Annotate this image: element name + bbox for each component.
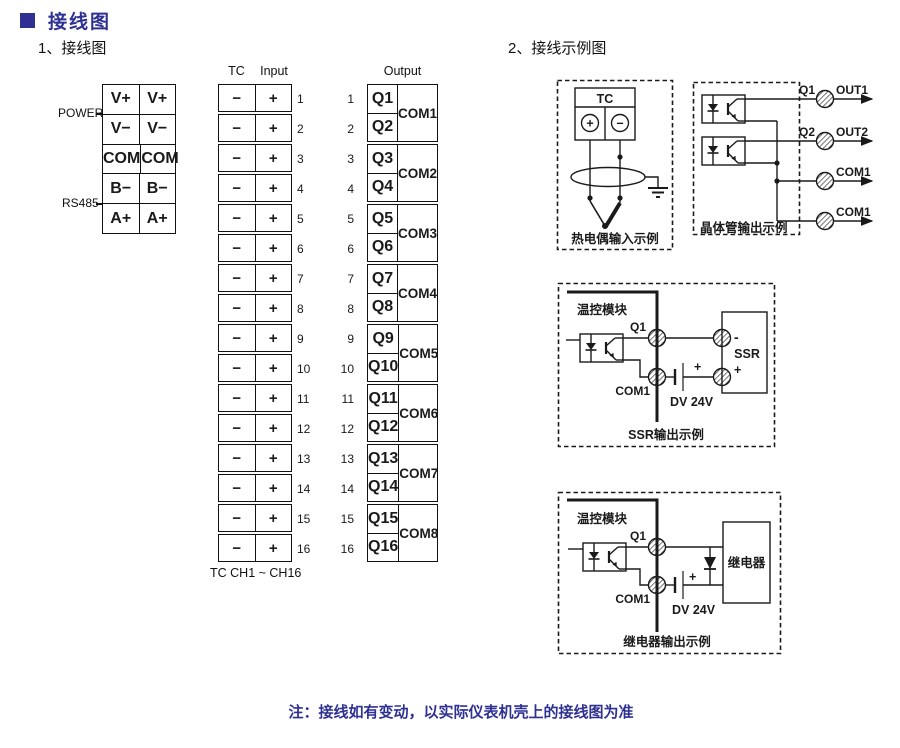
input-header-tc: TC <box>218 64 255 78</box>
input-channel-number: 3 <box>297 144 310 174</box>
output-channel-number: 8 <box>332 294 354 324</box>
section-bullet-icon <box>20 13 35 28</box>
power-row: COMCOM <box>103 144 175 174</box>
power-row: V+V+ <box>103 85 175 114</box>
input-minus-terminal: − <box>219 385 256 411</box>
input-channel-row: −+ <box>218 294 292 322</box>
input-plus-terminal: + <box>256 265 292 291</box>
input-channel-row: −+ <box>218 414 292 442</box>
q1-terminal-icon <box>649 539 666 556</box>
input-channel-row: −+ <box>218 234 292 262</box>
output-q-cell: Q13 <box>368 445 398 474</box>
input-minus-terminal: − <box>219 295 256 321</box>
minus-sign: − <box>616 117 623 131</box>
output-channel-number: 10 <box>332 354 354 384</box>
input-channel-row: −+ <box>218 144 292 172</box>
input-minus-terminal: − <box>219 355 256 381</box>
input-header-input: Input <box>253 64 295 78</box>
output-channel-number: 2 <box>332 114 354 144</box>
footer-note: 注：接线如有变动，以实际仪表机壳上的接线图为准 <box>0 701 900 722</box>
optocoupler-icon <box>702 137 745 165</box>
input-channel-row: −+ <box>218 504 292 532</box>
output-channel-number: 12 <box>332 414 354 444</box>
output-channel-number: 13 <box>332 444 354 474</box>
tc-input-table: −+−+−+−+−+−+−+−+−+−+−+−+−+−+−+−+ <box>218 84 292 564</box>
input-channel-number: 5 <box>297 204 310 234</box>
example-caption: 继电器输出示例 <box>623 634 711 649</box>
input-plus-terminal: + <box>256 445 292 471</box>
output-q-cell: Q8 <box>368 294 397 322</box>
module-label: 温控模块 <box>577 511 628 526</box>
q1-label: Q1 <box>630 529 646 543</box>
input-plus-terminal: + <box>256 535 292 561</box>
input-minus-terminal: − <box>219 415 256 441</box>
output-com-cell: COM4 <box>398 265 437 321</box>
input-minus-terminal: − <box>219 505 256 531</box>
output-table: Q1Q2COM1Q3Q4COM2Q5Q6COM3Q7Q8COM4Q9Q10COM… <box>367 84 438 564</box>
com1-label: COM1 <box>615 592 650 606</box>
com1-terminal-icon <box>649 369 666 386</box>
output-channel-number: 5 <box>332 204 354 234</box>
output-q-cell: Q6 <box>368 234 397 262</box>
input-channel-row: −+ <box>218 264 292 292</box>
power-terminal-cell: V+ <box>103 85 139 114</box>
output-com-cell: COM6 <box>399 385 438 441</box>
output-q-cell: Q1 <box>368 85 397 114</box>
output-q-cell: Q2 <box>368 114 397 142</box>
optocoupler-icon <box>583 543 626 571</box>
battery-plus-sign: + <box>694 360 701 374</box>
input-channel-number: 1 <box>297 84 310 114</box>
input-plus-terminal: + <box>256 385 292 411</box>
output-pair-group: Q9Q10COM5 <box>367 324 438 382</box>
input-channel-row: −+ <box>218 174 292 202</box>
input-channel-row: −+ <box>218 324 292 352</box>
input-channel-row: −+ <box>218 474 292 502</box>
output-pair-group: Q1Q2COM1 <box>367 84 438 142</box>
output-pair-group: Q3Q4COM2 <box>367 144 438 202</box>
output-q-column: Q15Q16 <box>368 505 399 561</box>
input-minus-terminal: − <box>219 325 256 351</box>
q1-terminal-icon <box>649 330 666 347</box>
optocoupler-icon <box>702 95 745 123</box>
ssr-minus-sign: - <box>734 329 739 345</box>
input-plus-terminal: + <box>256 475 292 501</box>
output-q-cell: Q10 <box>368 354 398 382</box>
output-com-cell: COM3 <box>398 205 437 261</box>
output-channel-number: 3 <box>332 144 354 174</box>
battery-label: DV 24V <box>670 395 714 409</box>
input-channel-row: −+ <box>218 444 292 472</box>
output-q-column: Q5Q6 <box>368 205 398 261</box>
input-minus-terminal: − <box>219 85 256 111</box>
output-q-cell: Q14 <box>368 474 398 502</box>
output-channel-number: 14 <box>332 474 354 504</box>
out1-label: OUT1 <box>836 83 868 97</box>
power-terminal-cell: B− <box>139 174 176 203</box>
transistor-example-diagram: Q1 OUT1 Q2 OUT2 COM1 COM1 晶体管输出示例 <box>688 76 894 242</box>
ground-wire <box>645 177 658 188</box>
output-channel-number: 15 <box>332 504 354 534</box>
output-q-cell: Q5 <box>368 205 397 234</box>
input-channel-row: −+ <box>218 384 292 412</box>
input-plus-terminal: + <box>256 115 292 141</box>
example-caption: SSR输出示例 <box>628 427 704 442</box>
com1-terminal-icon <box>817 173 834 190</box>
output-header: Output <box>367 64 438 78</box>
output-channel-number: 7 <box>332 264 354 294</box>
flyback-diode-icon <box>704 557 716 569</box>
q1-label: Q1 <box>799 83 815 97</box>
power-terminal-cell: COM <box>103 145 140 174</box>
input-plus-terminal: + <box>256 325 292 351</box>
input-minus-terminal: − <box>219 475 256 501</box>
com1-label: COM1 <box>615 384 650 398</box>
thermocouple-example-diagram: TC + − 热电偶输入示例 <box>553 77 681 257</box>
input-plus-terminal: + <box>256 145 292 171</box>
ssr-minus-terminal-icon <box>714 330 731 347</box>
input-channel-number: 14 <box>297 474 310 504</box>
input-minus-terminal: − <box>219 115 256 141</box>
shield-ellipse <box>571 168 645 187</box>
output-com-cell: COM7 <box>399 445 438 501</box>
junction-wire-left <box>590 201 605 226</box>
ssr-plus-sign: + <box>734 363 741 377</box>
output-com-cell: COM2 <box>398 145 437 201</box>
output-q-cell: Q16 <box>368 534 398 562</box>
input-minus-terminal: − <box>219 205 256 231</box>
input-minus-terminal: − <box>219 445 256 471</box>
input-footer: TC CH1 ~ CH16 <box>210 566 301 580</box>
section1-title: 1、接线图 <box>38 37 106 58</box>
input-plus-terminal: + <box>256 205 292 231</box>
output-com-cell: COM5 <box>399 325 438 381</box>
output-q-cell: Q15 <box>368 505 398 534</box>
output-q-cell: Q9 <box>368 325 398 354</box>
output-com-cell: COM1 <box>398 85 437 141</box>
q2-terminal-icon <box>817 133 834 150</box>
power-terminal-cell: B− <box>103 174 139 203</box>
page-title: 接线图 <box>48 7 111 34</box>
power-group-label: POWER <box>58 106 96 120</box>
battery-label: DV 24V <box>672 603 716 617</box>
input-minus-terminal: − <box>219 175 256 201</box>
input-channel-number: 8 <box>297 294 310 324</box>
example-caption: 热电偶输入示例 <box>571 231 659 246</box>
output-q-cell: Q11 <box>368 385 398 414</box>
input-minus-terminal: − <box>219 535 256 561</box>
module-label: 温控模块 <box>577 302 628 317</box>
output-numbers-column: 12345678910111213141516 <box>332 84 354 564</box>
power-terminal-cell: A+ <box>103 204 139 233</box>
junction-wire-right <box>606 203 621 227</box>
output-q-column: Q13Q14 <box>368 445 399 501</box>
input-channel-row: −+ <box>218 84 292 112</box>
manual-page: 接线图 1、接线图 2、接线示例图 POWER RS485 V+V+V−V−CO… <box>0 0 900 748</box>
com1-label: COM1 <box>836 205 871 219</box>
input-plus-terminal: + <box>256 235 292 261</box>
input-plus-terminal: + <box>256 295 292 321</box>
input-plus-terminal: + <box>256 505 292 531</box>
output-q-cell: Q3 <box>368 145 397 174</box>
ssr-device-label: SSR <box>734 347 760 361</box>
input-channel-number: 7 <box>297 264 310 294</box>
out2-label: OUT2 <box>836 125 868 139</box>
q1-terminal-icon <box>817 91 834 108</box>
q1-label: Q1 <box>630 320 646 334</box>
input-minus-terminal: − <box>219 145 256 171</box>
ssr-example-diagram: 温控模块 Q1 COM1 + DV 24V SSR - + SSR输出示例 <box>553 278 788 453</box>
power-row: V−V− <box>103 114 175 144</box>
thermocouple-junction <box>602 223 608 229</box>
output-channel-number: 4 <box>332 174 354 204</box>
input-channel-row: −+ <box>218 114 292 142</box>
output-pair-group: Q15Q16COM8 <box>367 504 438 562</box>
output-channel-number: 1 <box>332 84 354 114</box>
q2-label: Q2 <box>799 125 815 139</box>
output-pair-group: Q13Q14COM7 <box>367 444 438 502</box>
output-pair-group: Q11Q12COM6 <box>367 384 438 442</box>
input-channel-number: 10 <box>297 354 310 384</box>
output-q-column: Q11Q12 <box>368 385 399 441</box>
output-com-cell: COM8 <box>399 505 438 561</box>
ssr-plus-terminal-icon <box>714 369 731 386</box>
input-minus-terminal: − <box>219 265 256 291</box>
input-channel-number: 11 <box>297 384 310 414</box>
plus-sign: + <box>586 117 593 131</box>
input-channel-row: −+ <box>218 534 292 562</box>
output-q-column: Q7Q8 <box>368 265 398 321</box>
output-q-cell: Q7 <box>368 265 397 294</box>
input-channel-number: 12 <box>297 414 310 444</box>
output-channel-number: 9 <box>332 324 354 354</box>
ground-icon <box>648 188 668 197</box>
output-pair-group: Q7Q8COM4 <box>367 264 438 322</box>
input-channel-row: −+ <box>218 354 292 382</box>
input-channel-number: 2 <box>297 114 310 144</box>
output-channel-number: 16 <box>332 534 354 564</box>
input-channel-number: 15 <box>297 504 310 534</box>
rs485-group-label: RS485 <box>62 196 96 210</box>
input-numbers-column: 12345678910111213141516 <box>297 84 310 564</box>
output-q-cell: Q4 <box>368 174 397 202</box>
com1-terminal-icon <box>649 577 666 594</box>
example-caption: 晶体管输出示例 <box>700 220 788 235</box>
section2-title: 2、接线示例图 <box>508 37 606 58</box>
output-channel-number: 6 <box>332 234 354 264</box>
input-channel-number: 4 <box>297 174 310 204</box>
power-row: A+A+ <box>103 203 175 233</box>
input-channel-number: 13 <box>297 444 310 474</box>
relay-device-label: 继电器 <box>728 555 766 570</box>
input-channel-number: 16 <box>297 534 310 564</box>
battery-plus-sign: + <box>689 570 696 584</box>
output-q-column: Q1Q2 <box>368 85 398 141</box>
power-terminal-cell: V− <box>139 115 176 144</box>
power-row: B−B− <box>103 173 175 203</box>
com1-label: COM1 <box>836 165 871 179</box>
power-terminal-cell: A+ <box>139 204 176 233</box>
com1-wire <box>623 360 649 377</box>
power-terminal-cell: COM <box>140 145 178 174</box>
input-channel-number: 6 <box>297 234 310 264</box>
input-plus-terminal: + <box>256 175 292 201</box>
input-channel-row: −+ <box>218 204 292 232</box>
com1-wire <box>626 569 649 585</box>
optocoupler-icon <box>580 334 623 362</box>
input-minus-terminal: − <box>219 235 256 261</box>
com1-terminal-icon <box>817 213 834 230</box>
power-terminal-cell: V+ <box>139 85 176 114</box>
tc-label: TC <box>597 92 614 106</box>
output-q-column: Q9Q10 <box>368 325 399 381</box>
input-plus-terminal: + <box>256 85 292 111</box>
output-pair-group: Q5Q6COM3 <box>367 204 438 262</box>
input-plus-terminal: + <box>256 415 292 441</box>
output-q-cell: Q12 <box>368 414 398 442</box>
input-plus-terminal: + <box>256 355 292 381</box>
output-q-column: Q3Q4 <box>368 145 398 201</box>
page-header: 接线图 <box>20 7 111 34</box>
power-terminal-cell: V− <box>103 115 139 144</box>
output-channel-number: 11 <box>332 384 354 414</box>
input-channel-number: 9 <box>297 324 310 354</box>
power-table: V+V+V−V−COMCOMB−B−A+A+ <box>102 84 176 234</box>
relay-example-diagram: 温控模块 Q1 COM1 + DV 24V 继电器 继电器输出示例 <box>553 487 788 662</box>
